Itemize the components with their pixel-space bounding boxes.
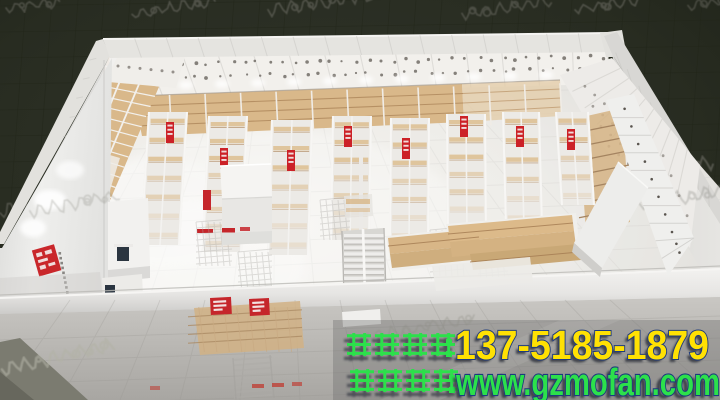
svg-text:www.gzmofan.com: www.gzmofan.com bbox=[455, 362, 720, 400]
